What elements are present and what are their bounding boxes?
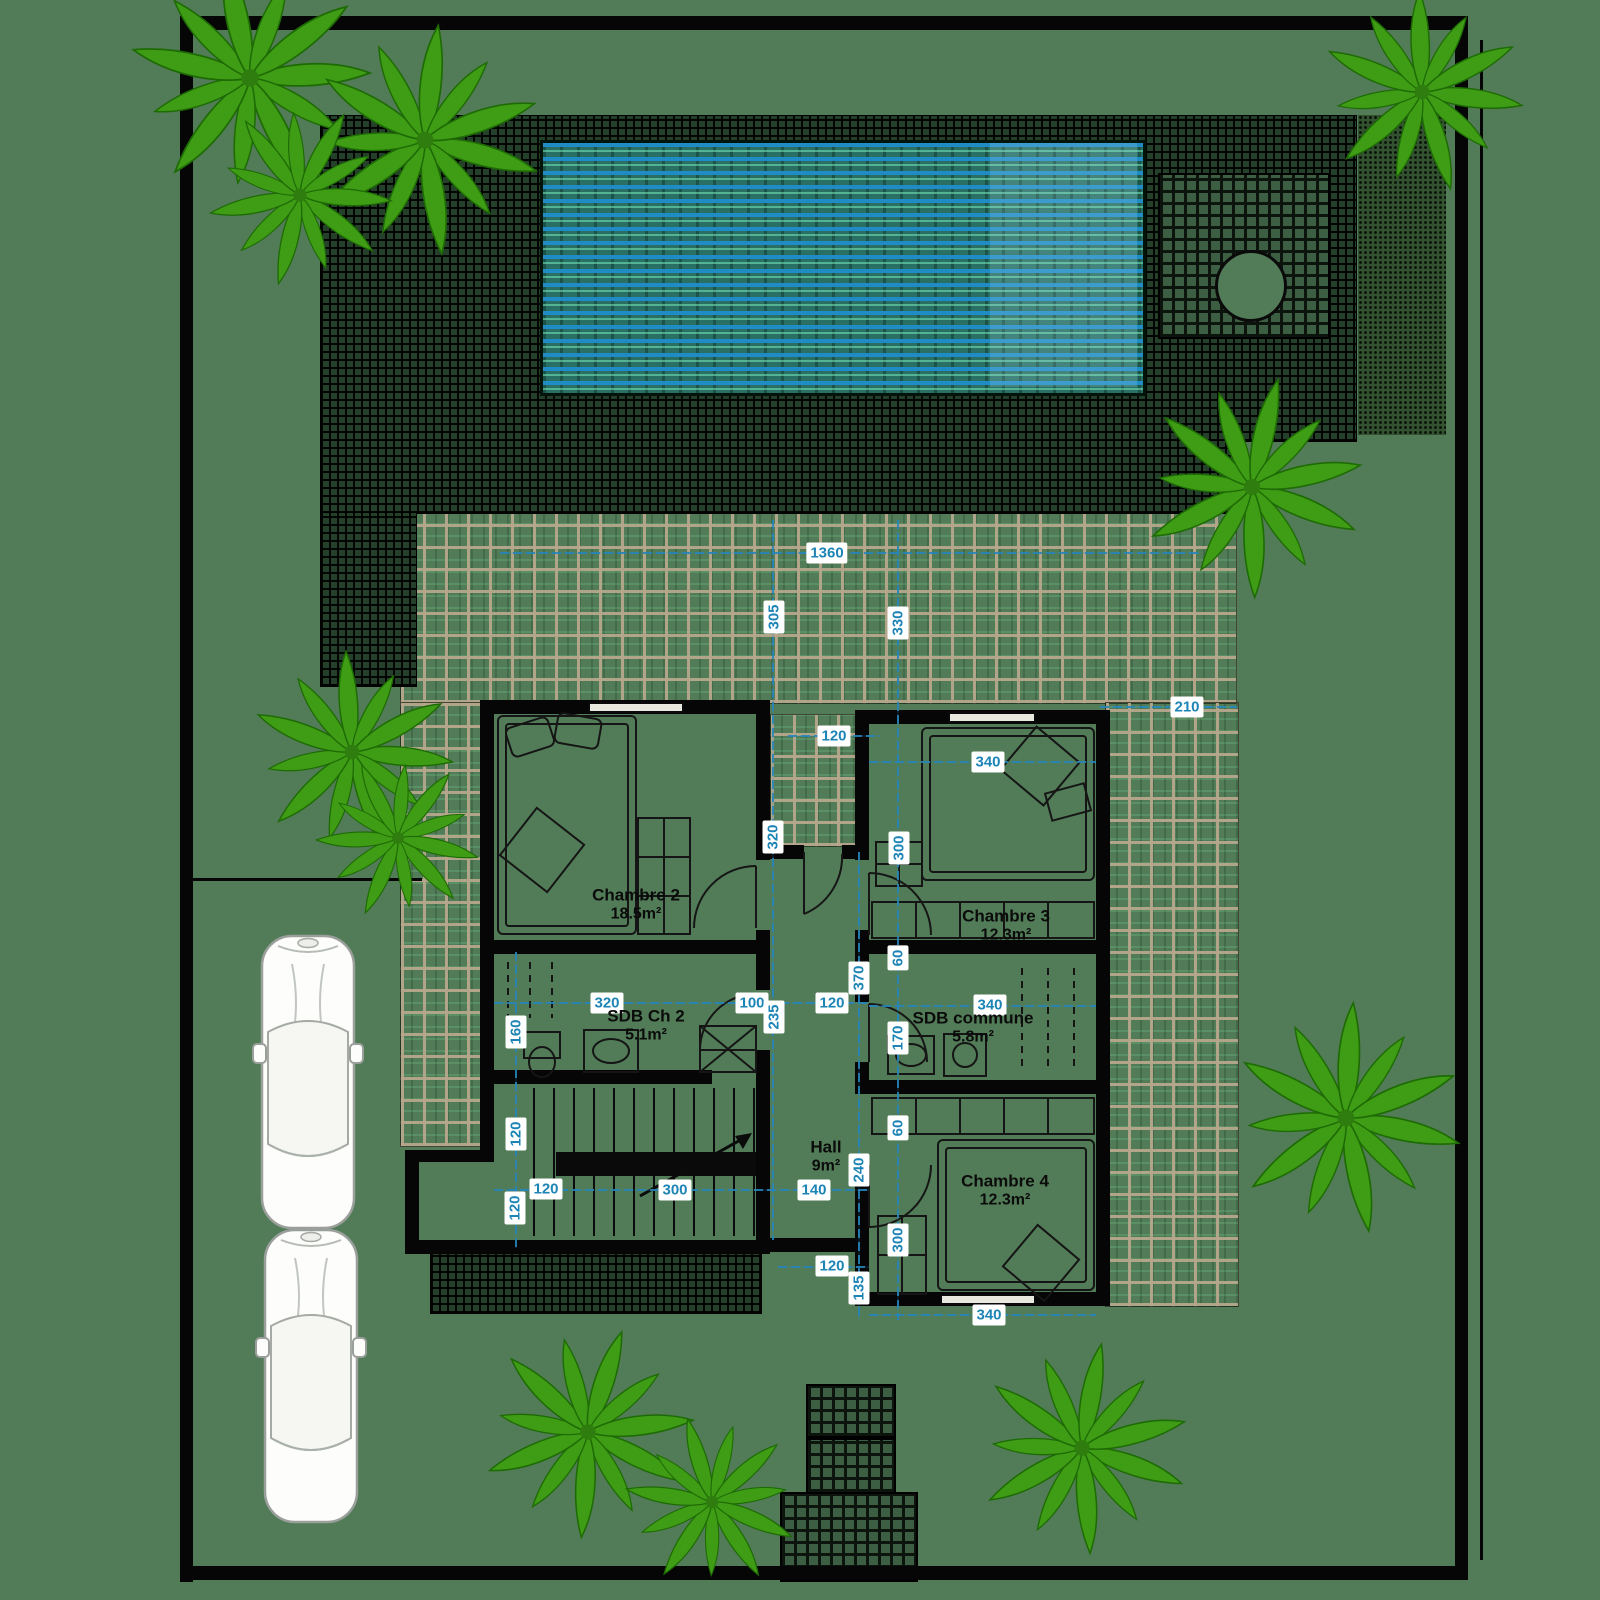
dimension-label: 60: [888, 946, 909, 971]
room-area: 12.3m²: [961, 1192, 1049, 1211]
dimension-line: [897, 520, 899, 1320]
floor-plan: 1360305330210120340320300320100120235160…: [0, 0, 1600, 1600]
dimension-label: 135: [849, 1271, 870, 1304]
room-name: Chambre 3: [962, 907, 1050, 926]
dimension-label: 330: [888, 606, 909, 639]
dimension-line: [858, 852, 860, 1320]
dimension-label: 300: [658, 1180, 691, 1201]
dimension-label: 140: [797, 1180, 830, 1201]
room-label-chambre-3: Chambre 312.3m²: [962, 907, 1050, 946]
dimension-label: 1360: [806, 543, 847, 564]
dimension-label: 305: [764, 600, 785, 633]
dimension-label: 300: [888, 1223, 909, 1256]
door-chambre2: [694, 866, 756, 928]
room-name: Chambre 4: [961, 1172, 1049, 1191]
dimension-label: 170: [888, 1021, 909, 1054]
dimension-label: 320: [763, 820, 784, 853]
bed-chambre3: [922, 727, 1094, 880]
palm-tree-icon: [1207, 977, 1487, 1252]
room-area: 9m²: [810, 1158, 841, 1177]
door-entry: [804, 852, 842, 914]
room-label-hall: Hall9m²: [810, 1138, 841, 1177]
dimension-label: 120: [817, 726, 850, 747]
dimension-label: 120: [506, 1117, 527, 1150]
room-area: 12.3m²: [962, 927, 1050, 946]
room-area: 18.5m²: [592, 906, 680, 925]
palm-tree-icon: [947, 1311, 1219, 1580]
dimension-label: 120: [505, 1191, 526, 1224]
dimension-label: 300: [889, 831, 910, 864]
room-name: SDB commune: [913, 1009, 1034, 1028]
dimension-line: [1100, 706, 1237, 708]
dimension-line: [500, 552, 1200, 554]
dimension-label: 60: [888, 1116, 909, 1141]
bed-chambre4: [938, 1140, 1094, 1301]
room-area: 5.1m²: [607, 1027, 684, 1046]
room-label-chambre-2: Chambre 218.5m²: [592, 886, 680, 925]
room-name: SDB Ch 2: [607, 1007, 684, 1026]
dimension-label: 210: [1170, 697, 1203, 718]
dimension-label: 340: [971, 752, 1004, 773]
palm-tree-icon: [1109, 341, 1399, 628]
car-top-view: [256, 1230, 366, 1522]
dimension-label: 370: [849, 961, 870, 994]
dimension-label: 240: [849, 1153, 870, 1186]
palm-tree-icon: [131, 0, 370, 191]
dimension-line: [494, 1002, 869, 1004]
staircase: [534, 1088, 756, 1236]
room-name: Hall: [810, 1138, 841, 1157]
dimension-label: 235: [764, 1000, 785, 1033]
room-label-sdb-commune: SDB commune5.8m²: [913, 1009, 1034, 1048]
dimension-label: 160: [506, 1015, 527, 1048]
dimension-label: 340: [972, 1305, 1005, 1326]
car-top-view: [253, 936, 363, 1228]
furniture-layer: [0, 0, 1600, 1600]
dimension-label: 120: [529, 1179, 562, 1200]
room-area: 5.8m²: [913, 1029, 1034, 1048]
palm-tree-icon: [1307, 0, 1539, 203]
dimension-label: 120: [815, 993, 848, 1014]
dimension-label: 120: [815, 1256, 848, 1277]
room-label-sdb-ch2: SDB Ch 25.1m²: [607, 1007, 684, 1046]
room-name: Chambre 2: [592, 886, 680, 905]
room-label-chambre-4: Chambre 412.3m²: [961, 1172, 1049, 1211]
